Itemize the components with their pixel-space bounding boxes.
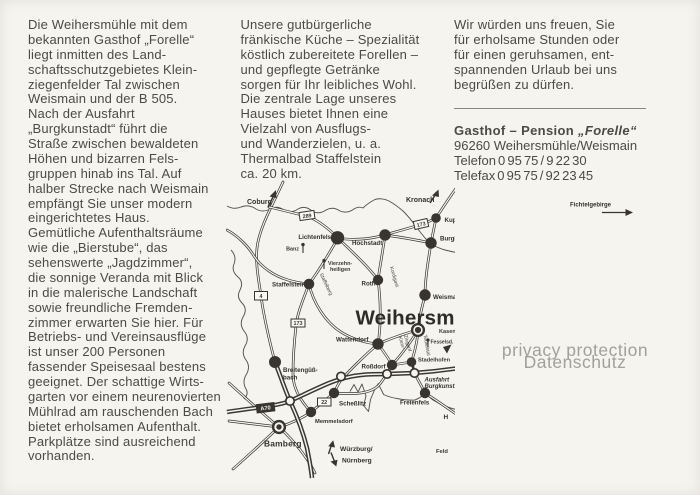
svg-text:H: H: [444, 414, 449, 421]
svg-text:Memmelsdorf: Memmelsdorf: [315, 419, 353, 425]
svg-text:289: 289: [302, 213, 312, 220]
svg-text:Banz: Banz: [286, 247, 299, 253]
svg-text:Kasendorf: Kasendorf: [439, 329, 467, 335]
svg-text:Lichtenfels: Lichtenfels: [298, 234, 331, 241]
svg-text:bach: bach: [283, 375, 298, 382]
svg-text:Bamberg: Bamberg: [264, 439, 302, 449]
svg-text:Breitengüß-: Breitengüß-: [283, 367, 318, 374]
svg-text:Freienfels: Freienfels: [400, 400, 430, 407]
svg-text:22: 22: [321, 400, 327, 406]
svg-text:Hochstadt: Hochstadt: [352, 240, 382, 247]
svg-text:Nürnberg: Nürnberg: [342, 457, 372, 464]
svg-text:Staffelberg: Staffelberg: [318, 272, 334, 296]
svg-text:Scheßlitz: Scheßlitz: [339, 401, 366, 408]
svg-text:173: 173: [416, 221, 426, 229]
svg-text:Ausfahrt: Ausfahrt: [424, 378, 451, 384]
svg-text:Teufelstal: Teufelstal: [422, 334, 432, 356]
svg-text:Staffelstein: Staffelstein: [272, 282, 306, 289]
svg-text:Roßdorf: Roßdorf: [362, 364, 387, 371]
svg-text:Fesselsd.: Fesselsd.: [431, 340, 454, 346]
svg-text:Roth: Roth: [362, 281, 376, 288]
svg-text:Würzburg/: Würzburg/: [340, 446, 373, 453]
svg-text:Weihersmühle: Weihersmühle: [356, 306, 498, 329]
svg-text:173: 173: [294, 321, 303, 327]
svg-text:Wattendorf: Wattendorf: [336, 336, 369, 343]
svg-text:Burgkunst.: Burgkunst.: [425, 384, 457, 390]
svg-text:Coburg: Coburg: [247, 199, 272, 206]
svg-text:Kordigast: Kordigast: [388, 266, 400, 289]
svg-text:A70: A70: [260, 405, 271, 412]
svg-text:Stadelhofen: Stadelhofen: [418, 358, 451, 364]
svg-text:Fichtelgebirge: Fichtelgebirge: [570, 203, 612, 209]
svg-text:Weismain: Weismain: [433, 294, 462, 301]
svg-text:Feld: Feld: [436, 449, 448, 455]
svg-text:heiligen: heiligen: [330, 267, 350, 273]
svg-text:Burgkunstadt: Burgkunstadt: [440, 236, 480, 243]
svg-text:Kups: Kups: [445, 217, 461, 224]
svg-text:4: 4: [260, 294, 263, 300]
